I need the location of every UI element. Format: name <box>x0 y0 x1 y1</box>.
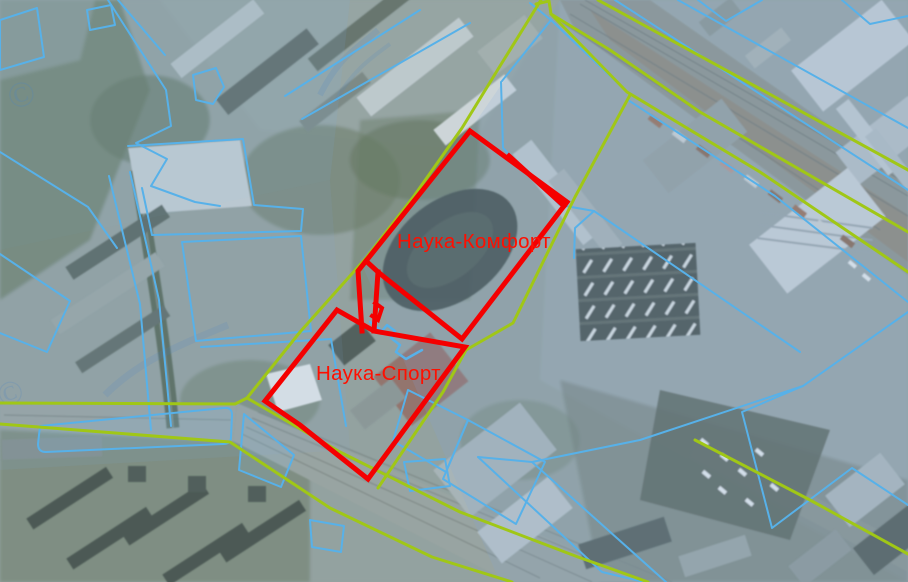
parcel-label-nauka-komfort: Наука-Комфорт <box>397 230 551 253</box>
parcel-label-nauka-sport: Наука-Спорт <box>316 362 441 385</box>
map-viewport[interactable]: © © <box>0 0 908 582</box>
